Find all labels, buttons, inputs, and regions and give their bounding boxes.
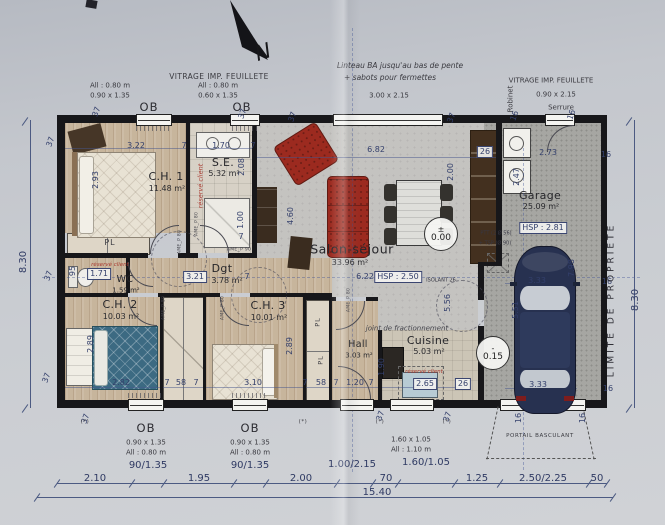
dim-tick — [610, 493, 617, 502]
dim-tick — [626, 404, 633, 413]
note-label: 0.90 x 1.35 — [90, 92, 130, 99]
room-area-garage: 25.09 m² — [523, 203, 559, 211]
room-area-cuisine: 5.03 m² — [413, 348, 444, 356]
dim-line — [257, 157, 497, 158]
chain-dim-label: 50 — [591, 474, 604, 485]
dim-label: 7 — [333, 379, 338, 387]
car-roof — [520, 312, 570, 368]
dim-label: 3.21 — [183, 271, 207, 283]
window-ob — [232, 399, 268, 411]
wall — [65, 253, 148, 258]
dim-tick — [22, 117, 29, 126]
dim-tick — [626, 117, 633, 126]
dim-label: 8.30 — [19, 251, 30, 273]
level-marker-salon: ± 0.00 — [424, 217, 458, 251]
wall — [372, 400, 390, 408]
room-area-se: 5.32 m² — [208, 170, 239, 178]
dim-label: 37 — [45, 136, 56, 148]
room-area-ch2: 10.03 m² — [103, 313, 139, 321]
chain-dim-label: 1.95 — [188, 474, 210, 485]
dim-label: 6.82 — [367, 146, 385, 154]
note-label: Serrure — [548, 104, 574, 111]
dim-label: 7 — [193, 379, 198, 387]
corner-mark — [85, 0, 97, 9]
dim-label: 2.47 — [513, 168, 521, 186]
room-area-salon: 33.96 m² — [332, 259, 368, 267]
note-label: All : 0.80 m — [230, 449, 270, 456]
room-name-ch1: C.H. 1 — [148, 171, 183, 183]
chain-dim-label: 70 — [380, 474, 393, 485]
dim-label: 7.98 — [568, 259, 576, 277]
dim-label: 16 — [579, 413, 587, 423]
room-name-salon: Salon-séjour — [310, 242, 394, 255]
level-marker-garage: - 0.15 — [476, 336, 510, 370]
window-label-ob: OB — [137, 422, 156, 434]
car-windshield — [520, 286, 570, 310]
note-label: 0.90 x 1.35 — [230, 439, 270, 446]
dim-label: 1.20 — [346, 379, 364, 387]
wall — [57, 400, 128, 408]
driveway-line — [486, 458, 596, 459]
note-label: 0.90 x 2.15 — [536, 91, 576, 98]
note-label: AME_P 80 — [348, 288, 353, 312]
note-label: (*) — [443, 420, 452, 426]
room-name-wc: WC — [117, 275, 134, 285]
floorplan-photo: ± 0.00 - 0.15 3.2271.7076.82262.73163737… — [0, 0, 665, 525]
wall — [432, 400, 500, 408]
dim-label: 7 — [250, 142, 255, 150]
bay-window — [333, 114, 443, 126]
radiator — [136, 126, 170, 131]
closet-label: PL — [318, 355, 325, 365]
note-label: AME_P 80 — [222, 296, 227, 320]
note-label: (*) — [81, 420, 90, 426]
dim-label: 4.60 — [287, 207, 295, 225]
chair — [440, 184, 453, 201]
note-label: AME_P 80 — [163, 296, 168, 320]
dim-label: 16 — [515, 413, 523, 423]
car-taillight — [516, 396, 526, 401]
limite-propriete-label: LIMITE DE PROPRIETE — [607, 223, 616, 378]
dim-label: 7 — [368, 379, 373, 387]
car-taillight — [564, 396, 574, 401]
room-name-hall: Hall — [348, 340, 367, 350]
dim-label: 7 — [244, 273, 249, 281]
chain-dim-label: 2.00 — [290, 474, 312, 485]
dim-label: 2.93 — [92, 171, 100, 189]
room-name-cuisine: Cuisine — [407, 335, 449, 347]
chain-dim-label: 2.50/2.25 — [519, 474, 567, 485]
dim-label: + TSP (Ø 90) — [479, 241, 511, 246]
room-area-ch3: 10.01 m² — [251, 314, 287, 322]
note-label: + sabots pour fermettes — [344, 74, 436, 82]
note-portail-basculant: PORTAIL BASCULANT — [506, 434, 574, 440]
room-name-dgt: Dgt — [212, 263, 233, 275]
dim-tick — [22, 404, 29, 413]
radiator — [232, 393, 266, 398]
dim-label: 26 — [477, 146, 493, 158]
dim-label: ISOLANT 26 — [426, 278, 456, 283]
tv-unit — [257, 187, 277, 243]
wall — [203, 297, 206, 400]
note-label: réservé client — [198, 164, 205, 209]
note-vitrage-top-left: VITRAGE IMP. FEUILLETE — [169, 73, 269, 81]
dim-label: 1.70 — [212, 142, 230, 150]
room-name-se: S.E. — [212, 157, 234, 169]
note-label: 0.60 x 1.35 — [198, 92, 238, 99]
dim-label: 3.33 — [528, 277, 546, 285]
room-name-garage: Garage — [519, 190, 561, 202]
total-width-dim: 15.40 — [363, 488, 392, 499]
wall — [170, 115, 230, 123]
window-ob — [136, 114, 172, 126]
window-label-ob: OB — [233, 101, 252, 113]
dim-label: 16 — [601, 151, 611, 159]
closet-label: PL — [104, 239, 115, 247]
dim-label: 37 — [43, 270, 54, 282]
dim-label: 26 — [455, 378, 471, 390]
chain-dim-label: 1.00/2.15 — [328, 460, 376, 471]
dim-tick — [604, 479, 611, 488]
chair — [384, 184, 397, 201]
dim-label: 2.65 — [413, 378, 437, 390]
closet-label: PL — [315, 317, 322, 327]
driveway-line — [486, 406, 498, 459]
chain-dim-label: 2.10 — [84, 474, 106, 485]
car-hood — [522, 252, 568, 272]
note-linteau: Linteau BA jusqu'au bas de pente — [337, 62, 463, 70]
window-label-ob: OB — [140, 101, 159, 113]
room-name-ch2: C.H. 2 — [102, 299, 137, 311]
dim-label: 2.73 — [539, 149, 557, 157]
dim-label: HSP : 2.50 — [374, 271, 422, 283]
dim-label: 58 — [316, 379, 326, 387]
note-label: 1.60 x 1.05 — [391, 436, 431, 443]
dim-label: 5.51 — [512, 301, 520, 319]
note-label: Robinet — [507, 86, 514, 113]
chair — [384, 206, 397, 223]
dim-total-line — [37, 497, 613, 498]
window-label-ob: OB — [241, 422, 260, 434]
chain-dim-label: 90/1.35 — [231, 461, 269, 472]
window-cuisine — [390, 399, 434, 411]
dim-label: HSP : 2.81 — [519, 222, 567, 234]
level-value: 0.00 — [431, 234, 451, 243]
front-door-opening — [340, 399, 374, 411]
car-mirror — [510, 282, 517, 286]
dim-label: 7 — [238, 233, 243, 241]
pillow-ch1 — [79, 156, 94, 234]
room-name-ch3: C.H. 3 — [250, 300, 285, 312]
dim-label: 1.90 — [378, 358, 386, 376]
radiator — [232, 126, 258, 131]
note-joint-fractionnement: joint de fractionnement — [366, 325, 449, 332]
dim-label: 7 — [181, 142, 186, 150]
note-label: 3.00 x 2.15 — [369, 92, 409, 99]
dim-label: 2.00 — [447, 163, 455, 181]
note-label: réservé client — [91, 263, 129, 269]
wall — [162, 400, 232, 408]
dim-label: 95 — [69, 266, 77, 276]
dim-line-left — [30, 120, 31, 408]
note-label: All : 0.80 m — [90, 82, 130, 89]
note-vitrage-top-right: VITRAGE IMP. FEUILLETE — [509, 77, 594, 84]
dim-label: 3.10 — [244, 379, 262, 387]
room-area-dgt: 3.78 m² — [211, 277, 242, 285]
dim-label: 3.33 — [529, 381, 547, 389]
radiator — [128, 393, 162, 398]
wall — [57, 115, 65, 408]
note-label: All : 0.80 m — [126, 449, 166, 456]
note-label: All : 0.80 m — [198, 82, 238, 89]
dim-label: 37 — [41, 372, 52, 384]
wall — [266, 400, 340, 408]
note-label: AME_P 90 — [227, 249, 251, 254]
note-label: AME_P 80 — [196, 212, 201, 236]
dim-label: 3.22 — [127, 142, 145, 150]
chain-dim-label: 1.25 — [466, 474, 488, 485]
dim-label: 2.82 — [112, 379, 130, 387]
room-area-hall: 3.03 m² — [345, 352, 372, 359]
wall — [366, 297, 378, 301]
dim-label: 7 — [164, 379, 169, 387]
dim-label: 58 — [176, 379, 186, 387]
dim-label: 5.56 — [444, 294, 452, 312]
room-area-ch1: 11.48 m² — [149, 185, 185, 193]
dim-label: 2.89 — [286, 337, 294, 355]
dim-line-right — [634, 120, 635, 408]
note-label: (*) — [299, 420, 308, 426]
dim-label: 1.00 — [237, 211, 245, 229]
dim-label: 1.71 — [87, 268, 111, 280]
car-mirror — [573, 282, 580, 286]
note-label: réservé client — [405, 370, 443, 376]
wall — [329, 297, 332, 400]
dim-label: 6.22 — [356, 273, 374, 281]
pillow-ch2 — [94, 330, 108, 386]
note-label: 0.90 x 1.35 — [126, 439, 166, 446]
chain-dim-label: 90/1.35 — [129, 461, 167, 472]
note-label: AME_P 80 — [179, 230, 184, 254]
note-label: (*) — [376, 420, 385, 426]
room-area-wc: 1.59 m² — [112, 287, 139, 294]
console-table — [287, 236, 312, 270]
dim-label: PTT (2 Ø 56) — [480, 231, 511, 236]
dim-label: 2.89 — [87, 335, 95, 353]
appliance-sink — [503, 128, 531, 158]
bed-ch3-headboard — [274, 344, 278, 398]
dim-label: 8.30 — [631, 289, 642, 311]
note-label: All : 1.10 m — [391, 446, 431, 453]
dim-label: 16 — [603, 385, 613, 393]
chain-dim-label: 1.60/1.05 — [402, 458, 450, 469]
dim-label: 7 — [302, 379, 307, 387]
level-value: 0.15 — [483, 353, 503, 362]
window-ob — [128, 399, 164, 411]
